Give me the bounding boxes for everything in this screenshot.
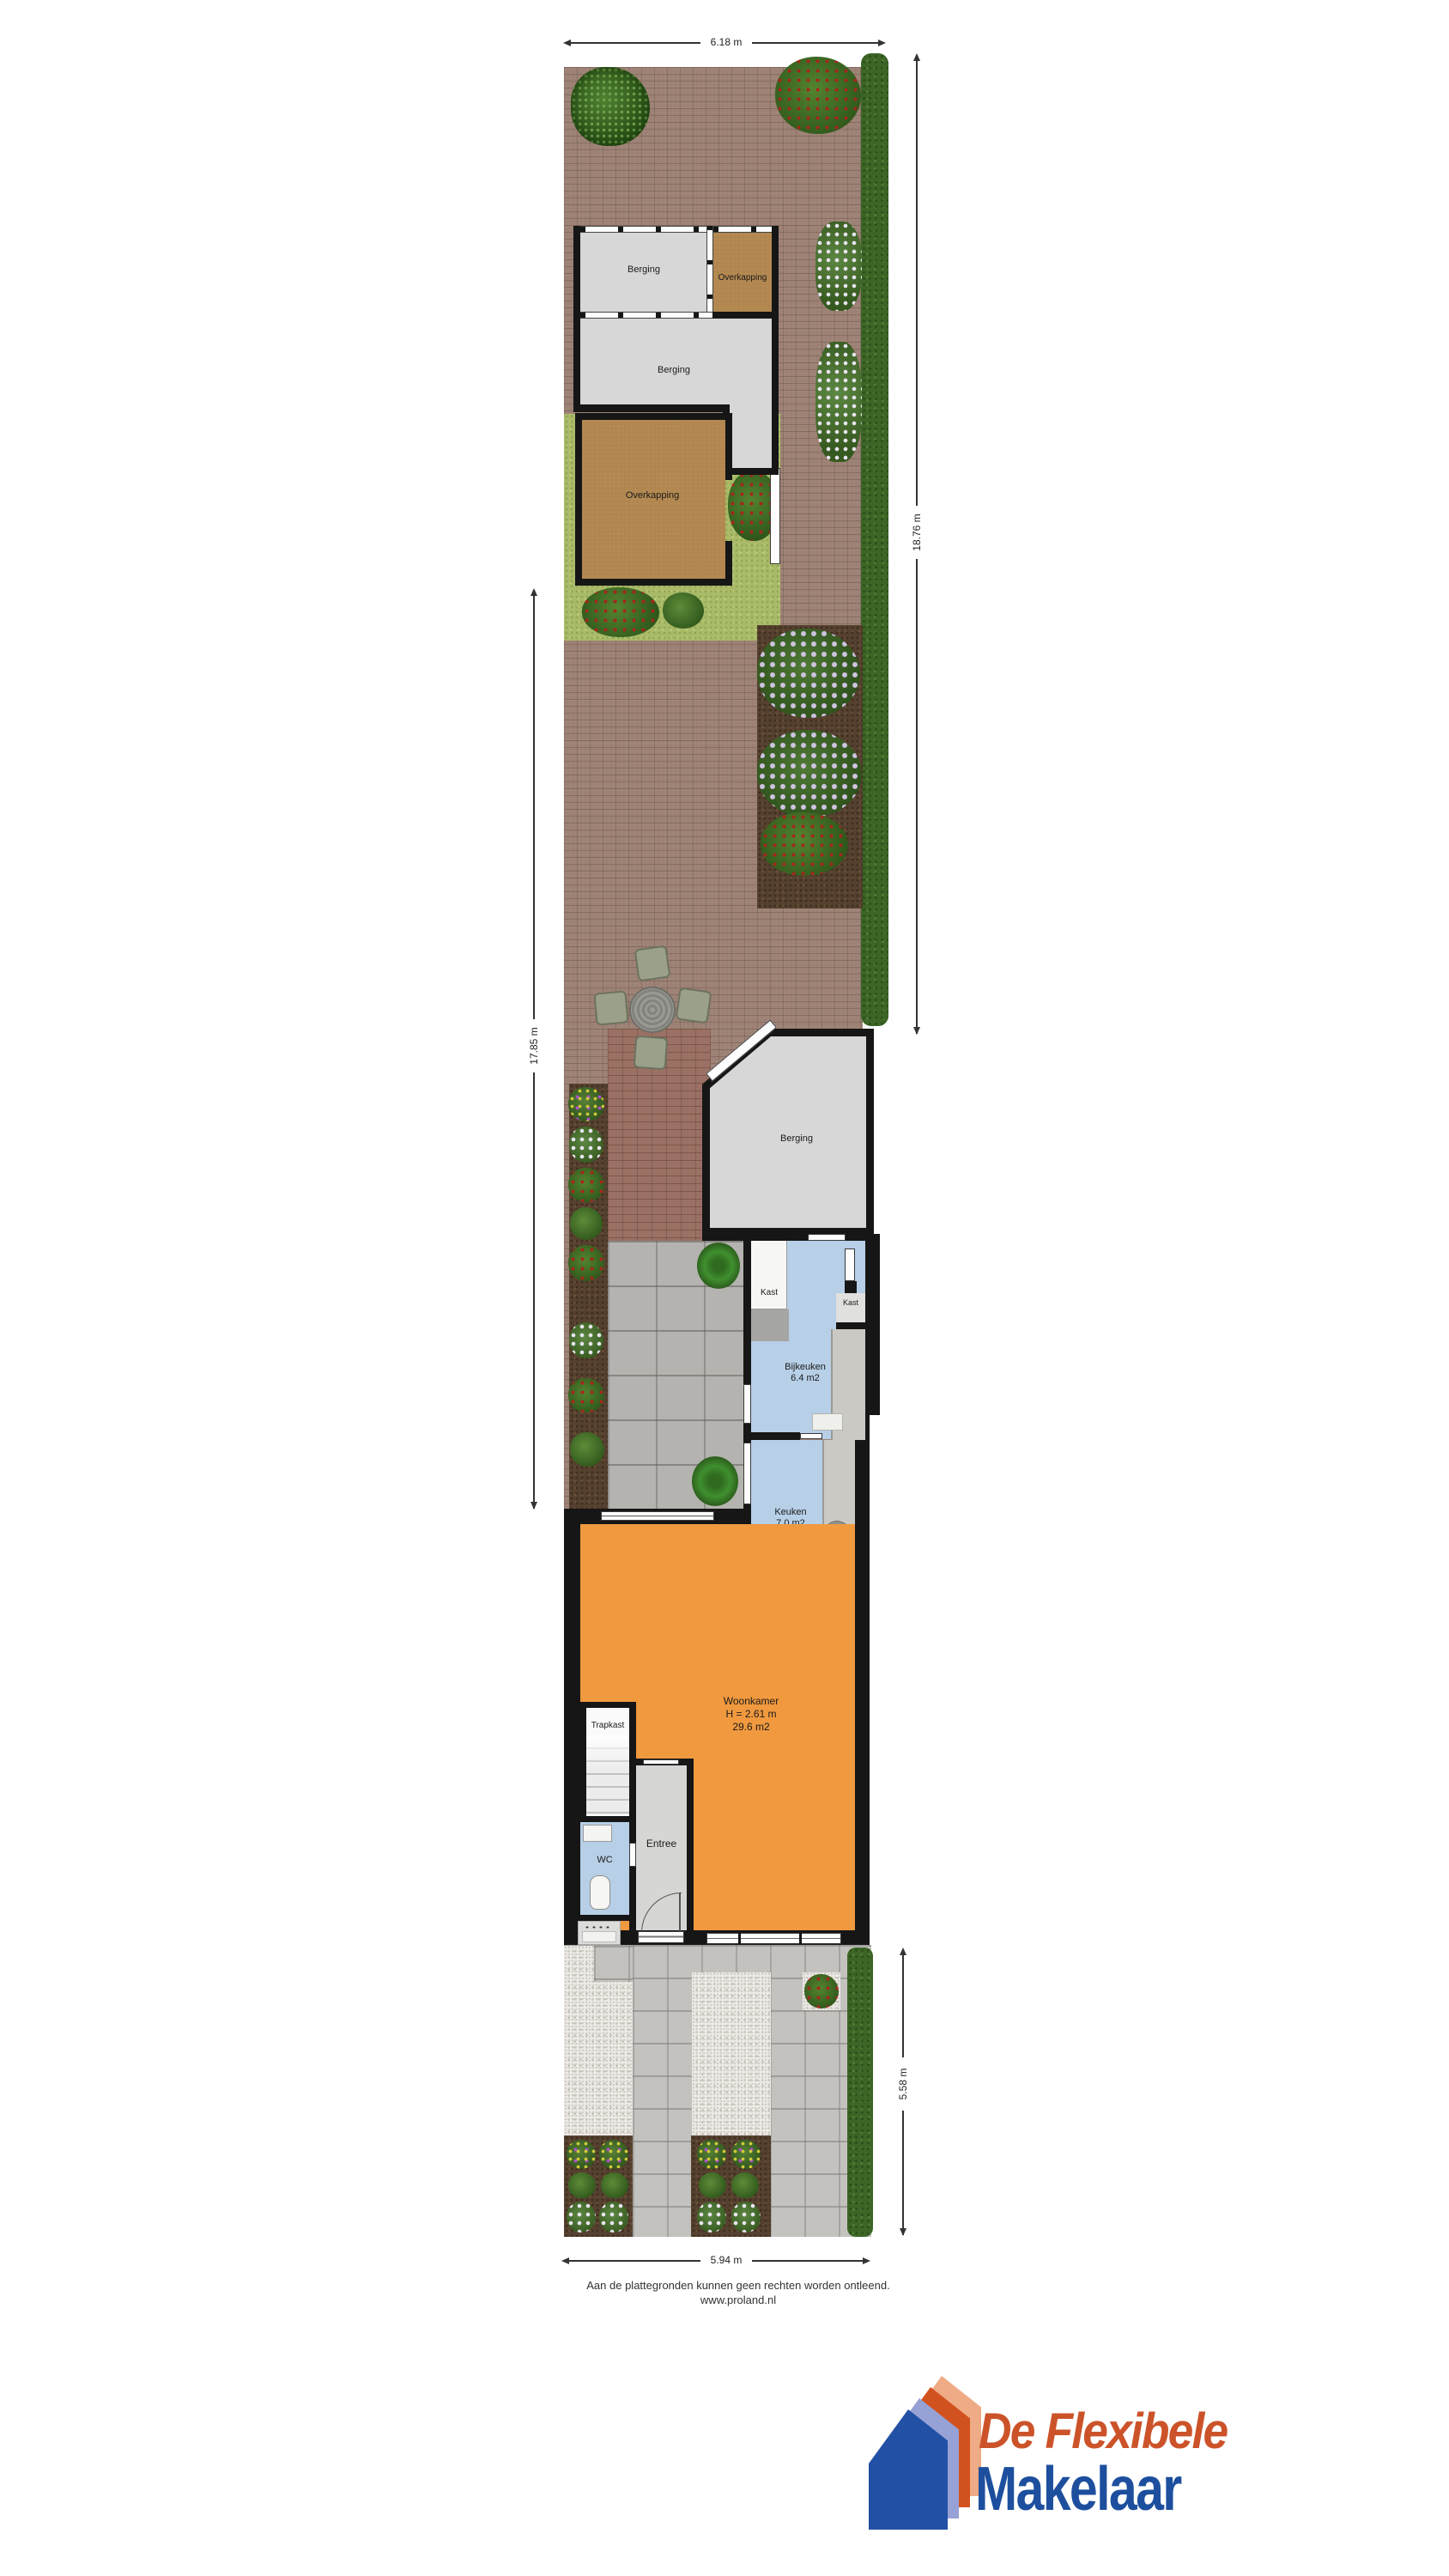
wall [725,541,732,586]
window-divider [799,1933,802,1944]
dimension-left-label: 17.85 m [527,1019,541,1072]
wall [573,226,580,319]
bush-red-flowers [568,1168,604,1202]
door-bijkeuken-patio [743,1384,751,1424]
potted-plant [692,1456,738,1506]
bush [601,2172,628,2198]
wall [702,1234,880,1241]
woonkamer-name: Woonkamer [724,1695,779,1707]
bush-red-flowers [761,812,848,876]
footer-website: www.proland.nl [438,2293,1039,2307]
window-rear [601,1511,714,1521]
window [800,1433,822,1439]
bush [731,2172,759,2198]
room-label-kast2: Kast [834,1298,867,1308]
door-kast2 [845,1249,855,1281]
arrow-left-icon [561,2257,569,2264]
wall [772,226,779,319]
gravel-strip [692,1972,771,2136]
window [643,1759,679,1765]
room-label-berging-mid: Berging [631,365,717,376]
glass-wall [713,226,772,233]
garden-gate [770,468,780,564]
arrow-left-icon [563,39,571,46]
arrow-down-icon [913,1027,920,1035]
closet-kast1 [751,1241,787,1309]
floorplan-canvas: Berging Overkapping Berging Overkapping … [0,0,1449,2576]
footer: Aan de plattegronden kunnen geen rechten… [438,2278,1039,2307]
arrow-down-icon [530,1502,537,1510]
wall [836,1322,865,1329]
arrow-right-icon [863,2257,870,2264]
living-window [706,1933,841,1944]
wall [725,413,732,480]
room-label-berging-top: Berging [601,264,687,276]
bijkeuken-name: Bijkeuken [785,1362,826,1372]
glass-wall [706,226,713,319]
arrow-right-icon [878,39,886,46]
room-label-kast1: Kast [750,1288,788,1298]
dimension-top-label: 6.18 m [700,35,752,49]
bush [568,2172,596,2198]
wall [573,404,730,412]
meter-box-dots [584,1925,609,1929]
bush-white-flowers [567,2202,596,2233]
arrow-up-icon [530,588,537,596]
woonkamer-height: H = 2.61 m [725,1708,776,1720]
bush-white-flowers [815,342,862,462]
room-berging-mid-leg [730,404,772,470]
door-wc [629,1843,636,1867]
wall [580,1915,629,1921]
bush-red-flowers [568,1245,604,1281]
cabinet [751,1309,789,1341]
bush-lilac [757,629,860,718]
wall [629,1702,636,1930]
bush-white-flowers [815,222,862,311]
meter-box-panel [582,1931,616,1942]
bush-lilac [757,730,862,817]
wall [712,312,779,319]
bush-red-flowers [568,1378,604,1413]
potted-plant [697,1242,740,1289]
wall [580,1816,629,1822]
arrow-down-icon [900,2228,906,2236]
bush-colorful [568,1087,604,1121]
room-label-trapkast: Trapkast [579,1721,637,1731]
wall [575,579,732,586]
dimension-right-upper-label: 18.76 m [910,506,924,559]
bush-red-flowers [775,57,861,134]
glass-wall [580,226,706,233]
bush-white-flowers [599,2202,628,2233]
bush [570,1432,604,1467]
room-label-overkapping-big: Overkapping [605,490,700,501]
terrace-chair [593,990,628,1025]
wall [687,1759,694,1930]
stairs [586,1735,629,1814]
door-leaf [679,1893,681,1932]
wall [575,413,582,586]
hedge-right [861,53,888,1026]
wall [575,413,732,420]
room-label-berging-rear: Berging [737,1133,857,1145]
logo-text-line2: Makelaar [975,2454,1228,2524]
room-berging-mid [580,319,772,404]
room-label-wc: WC [580,1855,629,1866]
arrow-up-icon [900,1947,906,1955]
window [743,1443,751,1504]
window-divider [738,1933,741,1944]
bush-colorful [599,2140,628,2169]
bush-white-flowers [569,1127,603,1163]
bush-red-flowers [804,1974,839,2008]
toilet [590,1875,610,1910]
bush-colorful [731,2140,761,2169]
bush [570,1207,603,1240]
bush [663,592,704,629]
appliance [812,1413,843,1431]
tree [571,67,650,146]
glass-wall [580,312,712,319]
room-label-bijkeuken: Bijkeuken 6.4 m2 [745,1362,865,1384]
window [808,1234,846,1241]
room-label-woonkamer: Woonkamer H = 2.61 m 29.6 m2 [682,1695,820,1734]
terrace-chair [634,945,671,982]
bush-white-flowers [697,2202,726,2233]
bush [699,2172,726,2198]
room-label-overkapping-top: Overkapping [704,273,781,283]
bush-colorful [567,2140,596,2169]
bijkeuken-area: 6.4 m2 [791,1373,820,1383]
bush-white-flowers [731,2202,761,2233]
bush-colorful [697,2140,726,2169]
logo-text-line1: De Flexibele [979,2403,1247,2460]
keuken-name: Keuken [774,1507,806,1517]
wc-sink [583,1825,612,1842]
bush-white-flowers [569,1322,603,1358]
arrow-up-icon [913,53,920,61]
wall-exterior-right [855,1415,870,1945]
bush-red-flowers [582,587,659,637]
terrace-chair [634,1036,669,1071]
terrace-chair [676,987,712,1024]
footer-disclaimer: Aan de plattegronden kunnen geen rechten… [438,2278,1039,2293]
woonkamer-area: 29.6 m2 [732,1721,769,1733]
paving-notch [594,1946,633,1982]
wall [845,1281,857,1293]
front-door [638,1931,684,1943]
terrace-table [629,987,676,1033]
wall [743,1432,800,1440]
dimension-right-lower-label: 5.58 m [896,2057,910,2111]
room-overkapping-top [713,233,772,312]
wall-exterior-right [865,1234,880,1415]
wall [772,312,779,475]
wall [573,312,580,410]
hedge-front [847,1947,873,2237]
logo: De Flexibele Makelaar [858,2361,1270,2542]
dimension-bottom-label: 5.94 m [700,2253,752,2267]
room-label-entree: Entree [636,1838,687,1850]
